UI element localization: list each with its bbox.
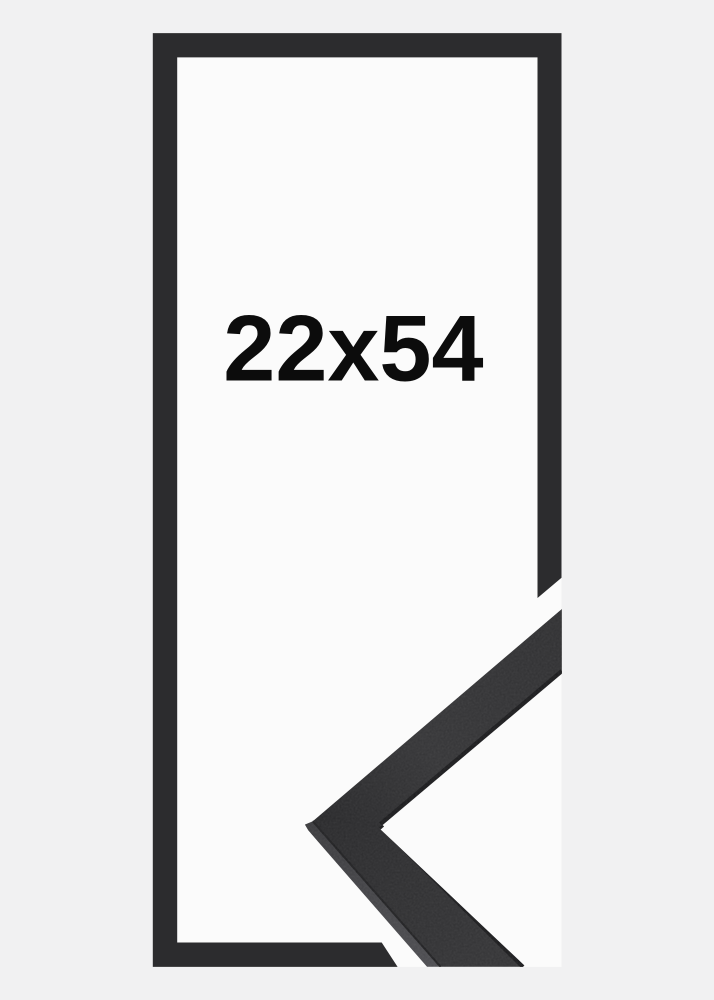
- svg-text:22x54: 22x54: [223, 295, 483, 400]
